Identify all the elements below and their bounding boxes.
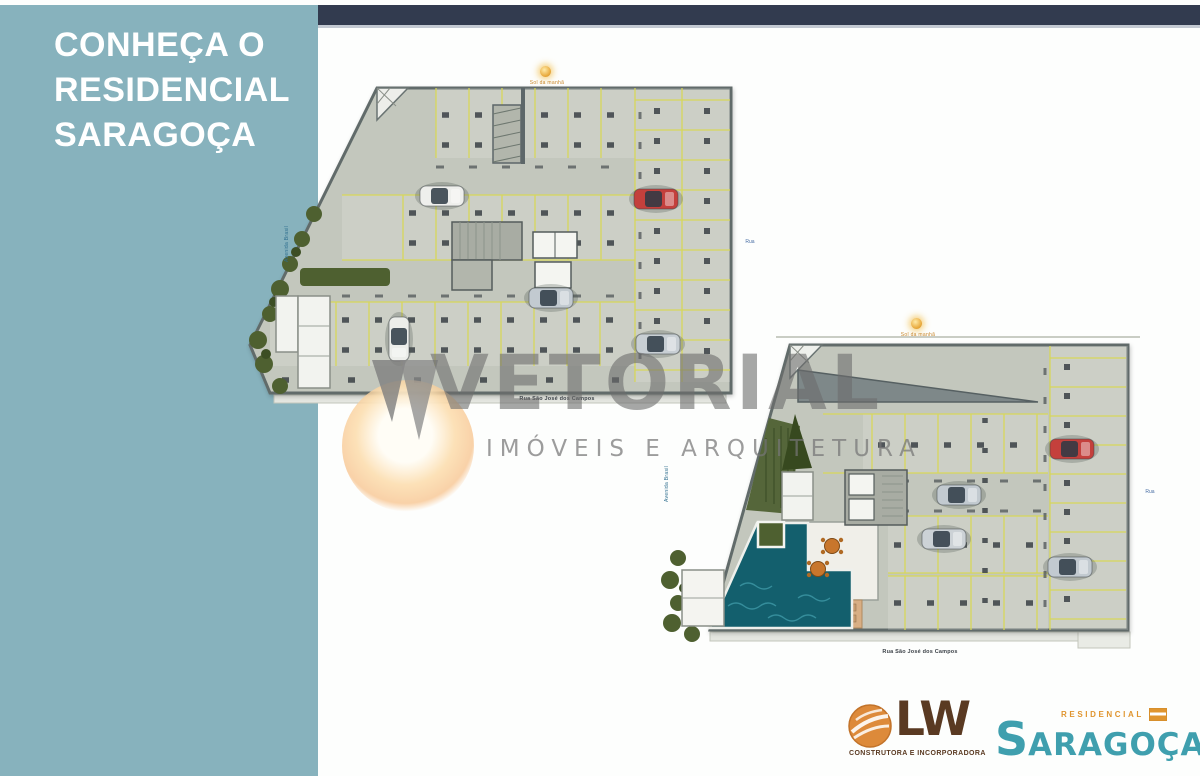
plan2-stall-strips [863, 346, 1128, 630]
saragoca-logo: RESIDENCIAL SARAGOÇA [995, 700, 1173, 766]
plan1-aisle-ticks [342, 112, 640, 374]
silver-car [631, 330, 685, 358]
sun-icon [911, 318, 922, 329]
saragoca-name-rest: ARAGOÇA [1028, 727, 1200, 763]
paver-patio [828, 600, 862, 628]
red-car [1045, 435, 1099, 463]
plan2-stall-lines [823, 346, 1126, 630]
page-title-line3: SARAGOÇA [54, 113, 304, 158]
lounger [834, 615, 856, 622]
lw-globe-icon [848, 704, 892, 748]
plan2-cars [917, 435, 1099, 581]
plan2-pool-area [710, 522, 878, 628]
plan1-cars [385, 182, 685, 366]
page-title: CONHEÇA O RESIDENCIAL SARAGOÇA [54, 23, 304, 158]
watermark-brand: VETORIAL [430, 338, 883, 427]
plan2-aisle-ticks [868, 368, 1045, 624]
white-car [415, 182, 469, 210]
plan2-core [782, 470, 907, 525]
white-car-vertical [385, 312, 413, 366]
street-label-side-plan2: Avenida Brasil [664, 466, 670, 502]
street-label-right-plan1: Rua [738, 240, 762, 245]
street-label-bottom-plan1: Rua São José dos Campos [447, 396, 667, 402]
plan2-spot-numbers [878, 364, 1067, 624]
plan2-entry-gate [790, 345, 822, 378]
plan1-core [452, 222, 577, 290]
street-label-bottom-plan2: Rua São José dos Campos [810, 649, 1030, 655]
sun-label-plan1: Sol da manhã [502, 80, 592, 86]
top-accent-bar [318, 5, 1200, 28]
red-car [629, 185, 683, 213]
silver-car [1043, 553, 1097, 581]
silver-car [917, 525, 971, 553]
deck-table [807, 561, 829, 577]
street-label-side-plan1: Avenida Brasil [284, 226, 290, 262]
plan2-ramp [798, 370, 1038, 402]
plan1-elevators [533, 232, 577, 258]
silver-car [524, 284, 578, 312]
floor-plan-ground-pool [648, 318, 1148, 668]
plan1-entry-gate [377, 88, 408, 120]
lw-initials: LW [895, 692, 969, 747]
silver-car [932, 481, 986, 509]
lw-logo: LW CONSTRUTORA E INCORPORADORA [848, 698, 983, 762]
street-label-right-plan2: Rua [1138, 490, 1162, 495]
watermark: VETORIAL IMÓVEIS E ARQUITETURA [340, 322, 940, 482]
swimming-pool [710, 523, 852, 628]
deck-table [821, 538, 843, 554]
plan2-garden [746, 414, 812, 514]
page-title-line1: CONHEÇA O [54, 23, 304, 68]
lounger [834, 604, 856, 611]
watermark-v-icon [372, 356, 482, 448]
plan1-outline [250, 88, 731, 403]
annex-building [682, 570, 724, 626]
page-title-line2: RESIDENCIAL [54, 68, 304, 113]
sidebar: CONHEÇA O RESIDENCIAL SARAGOÇA [0, 5, 318, 776]
brochure-page: { "sidebar": { "title_lines": ["CONHEÇA … [0, 0, 1200, 776]
plan1-spot-numbers [282, 108, 707, 380]
sun-icon [540, 66, 551, 77]
floor-plan-upper-garage [246, 64, 766, 409]
plan2-outline [710, 337, 1140, 648]
plan1-stall-lines [270, 88, 730, 382]
plan1-ramp [493, 88, 525, 164]
lw-tagline: CONSTRUTORA E INCORPORADORA [849, 750, 989, 757]
watermark-tagline: IMÓVEIS E ARQUITETURA [486, 436, 922, 462]
pool-planter [758, 522, 784, 547]
saragoca-name: SARAGOÇA [995, 712, 1200, 766]
saragoca-name-initial: S [995, 712, 1028, 766]
plan2-hedge [661, 550, 724, 642]
plan1-stall-strips [270, 88, 730, 382]
sun-label-plan2: Sol da manhã [873, 332, 963, 338]
pool-deck [784, 522, 878, 600]
